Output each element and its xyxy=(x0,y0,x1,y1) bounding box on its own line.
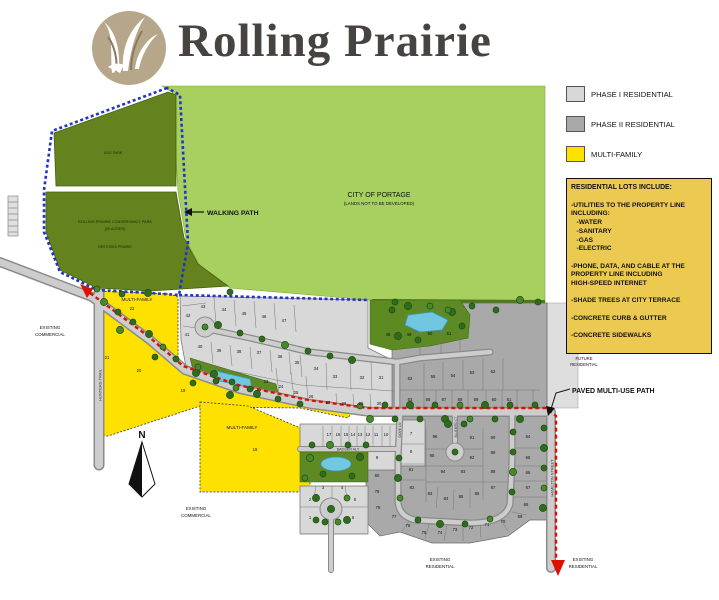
tree-icon xyxy=(356,453,363,460)
tree-icon xyxy=(493,307,499,313)
lot-number: 66 xyxy=(526,470,531,475)
tree-icon xyxy=(445,307,451,313)
tree-icon xyxy=(444,420,451,427)
lot-number: 94 xyxy=(441,469,446,474)
badger-aly-label: BADGER ALY xyxy=(337,448,360,452)
existing-commercial-left-1: EXISTING xyxy=(40,325,61,330)
tree-icon xyxy=(397,495,403,501)
tree-icon xyxy=(281,341,288,348)
lot-number: 76 xyxy=(406,523,411,528)
multi-family-upper-label: MULTI-FAMILY xyxy=(122,297,153,302)
lot-number: 61 xyxy=(507,397,512,402)
lot-number: 37 xyxy=(257,350,262,355)
tree-icon xyxy=(415,517,421,523)
rolling-prairie-logo-icon xyxy=(90,9,168,87)
lot-number: 43 xyxy=(201,304,206,309)
info-box-title: RESIDENTIAL LOTS INCLUDE: xyxy=(571,184,707,191)
phase1-swatch-label: PHASE I RESIDENTIAL xyxy=(591,90,673,99)
tree-icon xyxy=(510,449,516,455)
tree-icon xyxy=(507,402,513,408)
lot-number: 73 xyxy=(453,527,458,532)
pond-3 xyxy=(321,457,351,471)
phase1-lot9 xyxy=(367,450,396,470)
tree-icon xyxy=(349,473,355,479)
tree-icon xyxy=(327,505,334,512)
tree-icon xyxy=(394,474,401,481)
tree-icon xyxy=(516,296,523,303)
tree-icon xyxy=(152,354,158,360)
lot-number: 16 xyxy=(336,432,341,437)
lot-number: 36 xyxy=(278,354,283,359)
tree-icon xyxy=(145,330,152,337)
lot-number: 34 xyxy=(314,366,319,371)
lot-number: 69 xyxy=(518,514,523,519)
tree-icon xyxy=(190,380,196,386)
lot-number: 13 xyxy=(358,432,363,437)
legend-item-multi-family: MULTI-FAMILY xyxy=(566,146,718,162)
tree-icon xyxy=(535,299,541,305)
legend-item-phase2: PHASE II RESIDENTIAL xyxy=(566,116,718,132)
lot-number: 88 xyxy=(491,469,496,474)
lot-number: 14 xyxy=(351,432,356,437)
lot-number: 58 xyxy=(458,397,463,402)
tree-icon xyxy=(259,336,265,342)
lot-number: 65 xyxy=(526,455,531,460)
lot-number: 32 xyxy=(360,375,365,380)
tree-icon xyxy=(144,289,151,296)
tree-icon xyxy=(539,504,546,511)
tree-icon xyxy=(382,402,388,408)
tree-icon xyxy=(195,364,201,370)
tree-icon xyxy=(253,390,260,397)
tree-icon xyxy=(392,416,398,422)
tree-icon xyxy=(247,386,253,392)
tree-icon xyxy=(427,303,433,309)
lot-number: 67 xyxy=(526,485,531,490)
lot-number: 64 xyxy=(526,434,531,439)
tree-icon xyxy=(366,415,373,422)
tree-icon xyxy=(394,332,401,339)
lot-number: 78 xyxy=(376,505,381,510)
lot-number: 41 xyxy=(185,332,190,337)
restored-prairie-label: RESTORED PRAIRIE xyxy=(98,245,132,249)
lot-number: 82 xyxy=(410,485,415,490)
bluebird-ct-label: BLUEBIRD CT xyxy=(454,416,458,437)
lot-number: 11 xyxy=(374,432,379,437)
lot-number: 10 xyxy=(384,432,389,437)
lot-number: 74 xyxy=(438,530,443,535)
lot-number: 44 xyxy=(222,307,227,312)
tree-icon xyxy=(389,307,395,313)
lot-number: 15 xyxy=(344,432,349,437)
tree-icon xyxy=(173,356,179,362)
existing-commercial-bottom-2: COMMERCIAL xyxy=(181,513,211,518)
tree-icon xyxy=(510,429,516,435)
phase2-swatch xyxy=(566,116,585,132)
info-box-lines: -UTILITIES TO THE PROPERTY LINE INCLUDIN… xyxy=(571,193,707,341)
paved-path-label: PAVED MULTI-USE PATH xyxy=(572,388,655,395)
tree-icon xyxy=(462,521,468,527)
lot-number: 53 xyxy=(470,370,475,375)
lot-number: 35 xyxy=(295,360,300,365)
tree-icon xyxy=(457,402,463,408)
tree-icon xyxy=(213,378,219,384)
lot-number: 42 xyxy=(186,313,191,318)
lot-number: 75 xyxy=(422,530,427,535)
lot-number: 48 xyxy=(386,332,391,337)
tree-icon xyxy=(309,442,315,448)
conservancy-label: ROLLING PRAIRIE CONSERVANCY PARK xyxy=(78,220,152,224)
north-compass: N xyxy=(129,430,155,497)
existing-commercial-bottom-1: EXISTING xyxy=(186,506,207,511)
lot-number: 95 xyxy=(430,453,435,458)
phase1-lots7-8 xyxy=(399,420,425,466)
dog-park-label: DOG PARK xyxy=(104,151,123,155)
lot-number: 39 xyxy=(217,348,222,353)
tree-icon xyxy=(481,401,488,408)
lot-number: 27 xyxy=(326,400,331,405)
tree-icon xyxy=(192,369,199,376)
lot-number: 77 xyxy=(392,514,397,519)
lot-number: 72 xyxy=(469,525,474,530)
tree-icon xyxy=(160,344,166,350)
lot-number: 26 xyxy=(309,394,314,399)
lot-number: 79 xyxy=(375,489,380,494)
lot-number: 57 xyxy=(442,397,447,402)
tree-icon xyxy=(452,449,458,455)
tree-icon xyxy=(415,337,421,343)
land-areas xyxy=(46,86,578,543)
railroad-track-icon xyxy=(8,196,18,236)
tree-icon xyxy=(344,495,350,501)
lot-number: 12 xyxy=(366,432,371,437)
phase1-swatch xyxy=(566,86,585,102)
lot-number: 50 xyxy=(428,331,433,336)
tree-icon xyxy=(392,299,398,305)
compass-needle-dark xyxy=(129,442,142,497)
tree-icon xyxy=(320,471,326,477)
site-plan-page: N CITY OF PORTAGE (LANDS NOT TO BE DEVEL… xyxy=(0,0,719,600)
lot-number: 28 xyxy=(342,401,347,406)
tree-icon xyxy=(202,324,208,330)
lot-number: 51 xyxy=(447,331,452,336)
lot-number: 46 xyxy=(262,314,267,319)
lot-number: 19 xyxy=(181,388,186,393)
tree-icon xyxy=(406,401,413,408)
tree-icon xyxy=(214,321,221,328)
tree-icon xyxy=(541,425,547,431)
dove-ln-label: DOVE LN xyxy=(398,422,402,437)
tree-icon xyxy=(469,303,475,309)
tree-icon xyxy=(541,465,547,471)
lot-number: 18 xyxy=(253,447,258,452)
tree-icon xyxy=(404,302,411,309)
tree-icon xyxy=(237,330,243,336)
lot-number: 80 xyxy=(375,473,380,478)
lot-number: 86 xyxy=(475,491,480,496)
tree-icon xyxy=(532,402,538,408)
tree-icon xyxy=(305,348,311,354)
city-of-portage-sublabel: (LANDS NOT TO BE DEVELOPED) xyxy=(344,201,415,206)
lot-number: 59 xyxy=(474,397,479,402)
tree-icon xyxy=(306,454,313,461)
multi-family-swatch xyxy=(566,146,585,162)
existing-residential-right-1: EXISTING xyxy=(573,557,594,562)
tree-icon xyxy=(417,416,423,422)
lot-number: 30 xyxy=(377,401,382,406)
lot-number: 22 xyxy=(130,306,135,311)
lot-number: 31 xyxy=(379,375,384,380)
tree-icon xyxy=(327,353,333,359)
residential-lots-info-box: RESIDENTIAL LOTS INCLUDE: -UTILITIES TO … xyxy=(566,178,712,354)
phase2-swatch-label: PHASE II RESIDENTIAL xyxy=(591,120,675,129)
lot-number: 91 xyxy=(470,435,475,440)
lot-number: 68 xyxy=(524,502,529,507)
tree-icon xyxy=(363,442,369,448)
lot-number: 23 xyxy=(264,379,269,384)
lot-number: 92 xyxy=(470,455,475,460)
lot-number: 84 xyxy=(444,496,449,501)
tree-icon xyxy=(116,326,123,333)
tree-icon xyxy=(233,385,239,391)
multi-family-swatch-label: MULTI-FAMILY xyxy=(591,150,642,159)
lot-number: 47 xyxy=(282,318,287,323)
future-residential-label-2: RESIDENTIAL xyxy=(570,362,598,367)
tree-icon xyxy=(540,444,547,451)
lot-number: 40 xyxy=(198,344,203,349)
city-of-portage-label: CITY OF PORTAGE xyxy=(347,192,410,199)
existing-commercial-left-2: COMMERCIAL xyxy=(35,332,65,337)
lot-number: 70 xyxy=(501,519,506,524)
tree-icon xyxy=(94,286,100,292)
lot-number: 81 xyxy=(409,467,414,472)
lot-number: 63 xyxy=(408,397,413,402)
lot-number: 29 xyxy=(359,401,364,406)
tree-icon xyxy=(467,416,473,422)
lot-number: 55 xyxy=(431,374,436,379)
legend-item-phase1: PHASE I RESIDENTIAL xyxy=(566,86,718,102)
dog-park-area xyxy=(54,92,176,186)
tree-icon xyxy=(312,494,319,501)
tree-icon xyxy=(226,391,233,398)
lot-number: 85 xyxy=(459,494,464,499)
lot-number: 21 xyxy=(105,355,110,360)
tree-icon xyxy=(297,401,303,407)
lot-number: 25 xyxy=(294,390,299,395)
tree-icon xyxy=(509,468,516,475)
lot-number: 60 xyxy=(492,397,497,402)
lot-number: 52 xyxy=(491,369,496,374)
lot-number: 87 xyxy=(491,485,496,490)
lot-number: 54 xyxy=(451,373,456,378)
multi-family-lower-label: MULTI-FAMILY xyxy=(227,425,258,430)
tree-icon xyxy=(343,516,350,523)
tree-icon xyxy=(227,289,233,295)
tree-icon xyxy=(461,421,467,427)
tree-icon xyxy=(436,520,443,527)
lot-number: 90 xyxy=(491,435,496,440)
tree-icon xyxy=(459,323,465,329)
tree-icon xyxy=(541,485,547,491)
tree-icon xyxy=(313,517,319,523)
hunters-trail-label: HUNTERS TRAIL xyxy=(98,368,103,400)
lot-number: 83 xyxy=(428,491,433,496)
lot-number: 89 xyxy=(491,450,496,455)
tree-icon xyxy=(335,519,341,525)
tree-icon xyxy=(432,402,438,408)
tree-icon xyxy=(492,416,498,422)
existing-residential-center-2: RESIDENTIAL xyxy=(426,564,455,569)
lot-number: 24 xyxy=(279,384,284,389)
conservancy-acres-label: (20 ACRES) xyxy=(105,227,126,231)
tree-icon xyxy=(516,415,523,422)
tree-icon xyxy=(130,319,136,325)
tree-icon xyxy=(348,356,355,363)
walking-path-label: WALKING PATH xyxy=(207,210,259,217)
north-letter: N xyxy=(138,430,145,441)
page-title: Rolling Prairie xyxy=(178,14,492,68)
tree-icon xyxy=(509,489,515,495)
tree-icon xyxy=(302,475,308,481)
lot-number: 45 xyxy=(242,311,247,316)
tree-icon xyxy=(326,441,333,448)
tree-icon xyxy=(210,370,217,377)
hamilton-street-label: HAMILTON STREET xyxy=(550,459,555,497)
lot-number: 38 xyxy=(237,349,242,354)
tree-icon xyxy=(100,298,107,305)
existing-residential-right-2: RESIDENTIAL xyxy=(569,564,598,569)
lot-number: 96 xyxy=(433,434,438,439)
tree-icon xyxy=(275,396,281,402)
lot-number: 56 xyxy=(426,397,431,402)
tree-icon xyxy=(115,309,121,315)
lot-number: 62 xyxy=(408,376,413,381)
future-residential-label-1: FUTURE xyxy=(576,356,593,361)
lot-number: 20 xyxy=(137,368,142,373)
tree-icon xyxy=(396,455,402,461)
lot-number: 93 xyxy=(461,469,466,474)
lot-number: 49 xyxy=(407,332,412,337)
existing-residential-center-1: EXISTING xyxy=(430,557,451,562)
tree-icon xyxy=(322,519,328,525)
tree-icon xyxy=(229,379,235,385)
lot-number: 71 xyxy=(485,522,490,527)
map-legend: PHASE I RESIDENTIAL PHASE II RESIDENTIAL… xyxy=(566,86,718,176)
lot-number: 33 xyxy=(333,374,338,379)
lot-number: 17 xyxy=(327,432,332,437)
